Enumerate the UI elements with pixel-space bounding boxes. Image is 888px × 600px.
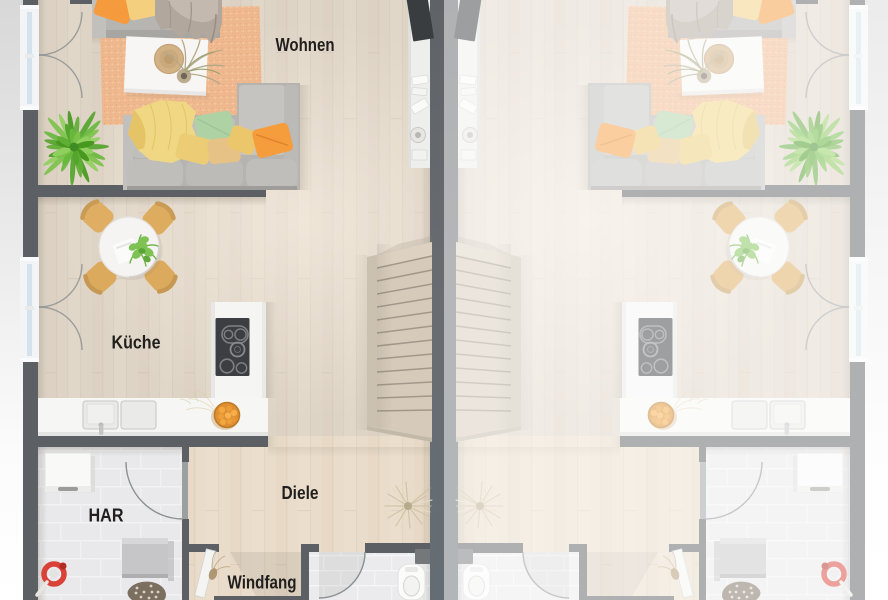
svg-text:Diele: Diele [282,482,319,503]
svg-text:Küche: Küche [112,332,161,353]
svg-text:Wohnen: Wohnen [276,34,335,55]
svg-text:Windfang: Windfang [228,572,297,593]
svg-text:HAR: HAR [89,505,124,526]
